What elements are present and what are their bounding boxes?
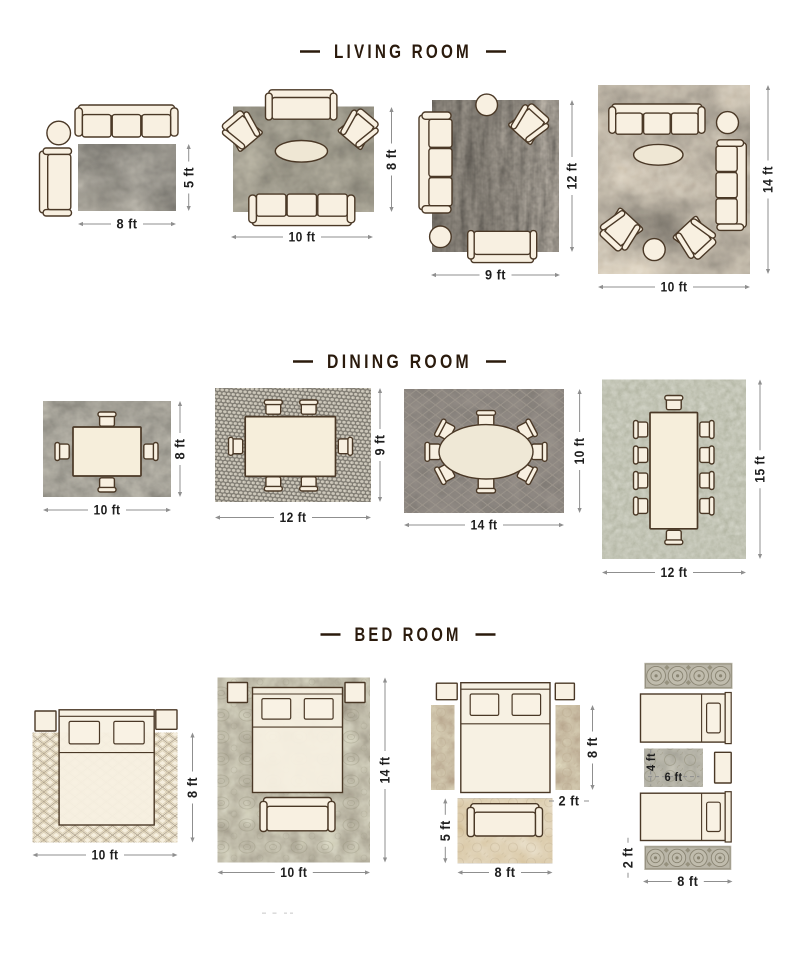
svg-text:8 ft: 8 ft bbox=[384, 149, 399, 170]
svg-text:8 ft: 8 ft bbox=[117, 217, 138, 232]
svg-text:10 ft: 10 ft bbox=[572, 438, 587, 465]
svg-text:10 ft: 10 ft bbox=[661, 280, 688, 295]
svg-text:8 ft: 8 ft bbox=[173, 438, 188, 459]
svg-text:DINING ROOM: DINING ROOM bbox=[327, 352, 472, 373]
svg-text:2 ft: 2 ft bbox=[621, 847, 636, 868]
svg-text:5 ft: 5 ft bbox=[181, 167, 196, 188]
svg-text:8 ft: 8 ft bbox=[495, 865, 516, 880]
svg-text:10 ft: 10 ft bbox=[280, 865, 307, 880]
svg-text:5 ft: 5 ft bbox=[438, 820, 453, 841]
svg-text:9 ft: 9 ft bbox=[485, 268, 506, 283]
svg-text:10 ft: 10 ft bbox=[289, 230, 316, 245]
svg-text:14 ft: 14 ft bbox=[471, 518, 498, 533]
svg-text:8 ft: 8 ft bbox=[185, 777, 200, 798]
svg-text:10 ft: 10 ft bbox=[92, 848, 119, 863]
svg-text:10 ft: 10 ft bbox=[94, 503, 121, 518]
svg-text:9 ft: 9 ft bbox=[373, 434, 388, 455]
svg-text:8 ft: 8 ft bbox=[677, 874, 698, 889]
svg-text:15 ft: 15 ft bbox=[753, 456, 768, 483]
svg-text:2 ft: 2 ft bbox=[559, 794, 580, 809]
svg-text:LIVING ROOM: LIVING ROOM bbox=[334, 42, 472, 63]
svg-text:8 ft: 8 ft bbox=[585, 737, 600, 758]
svg-text:14 ft: 14 ft bbox=[378, 757, 393, 784]
svg-text:4 ft: 4 ft bbox=[644, 753, 658, 771]
svg-text:12 ft: 12 ft bbox=[280, 510, 307, 525]
svg-text:BED ROOM: BED ROOM bbox=[355, 625, 462, 646]
svg-text:6 ft: 6 ft bbox=[665, 770, 683, 784]
svg-text:14 ft: 14 ft bbox=[761, 166, 776, 193]
svg-text:12 ft: 12 ft bbox=[565, 163, 580, 190]
svg-text:12 ft: 12 ft bbox=[661, 565, 688, 580]
